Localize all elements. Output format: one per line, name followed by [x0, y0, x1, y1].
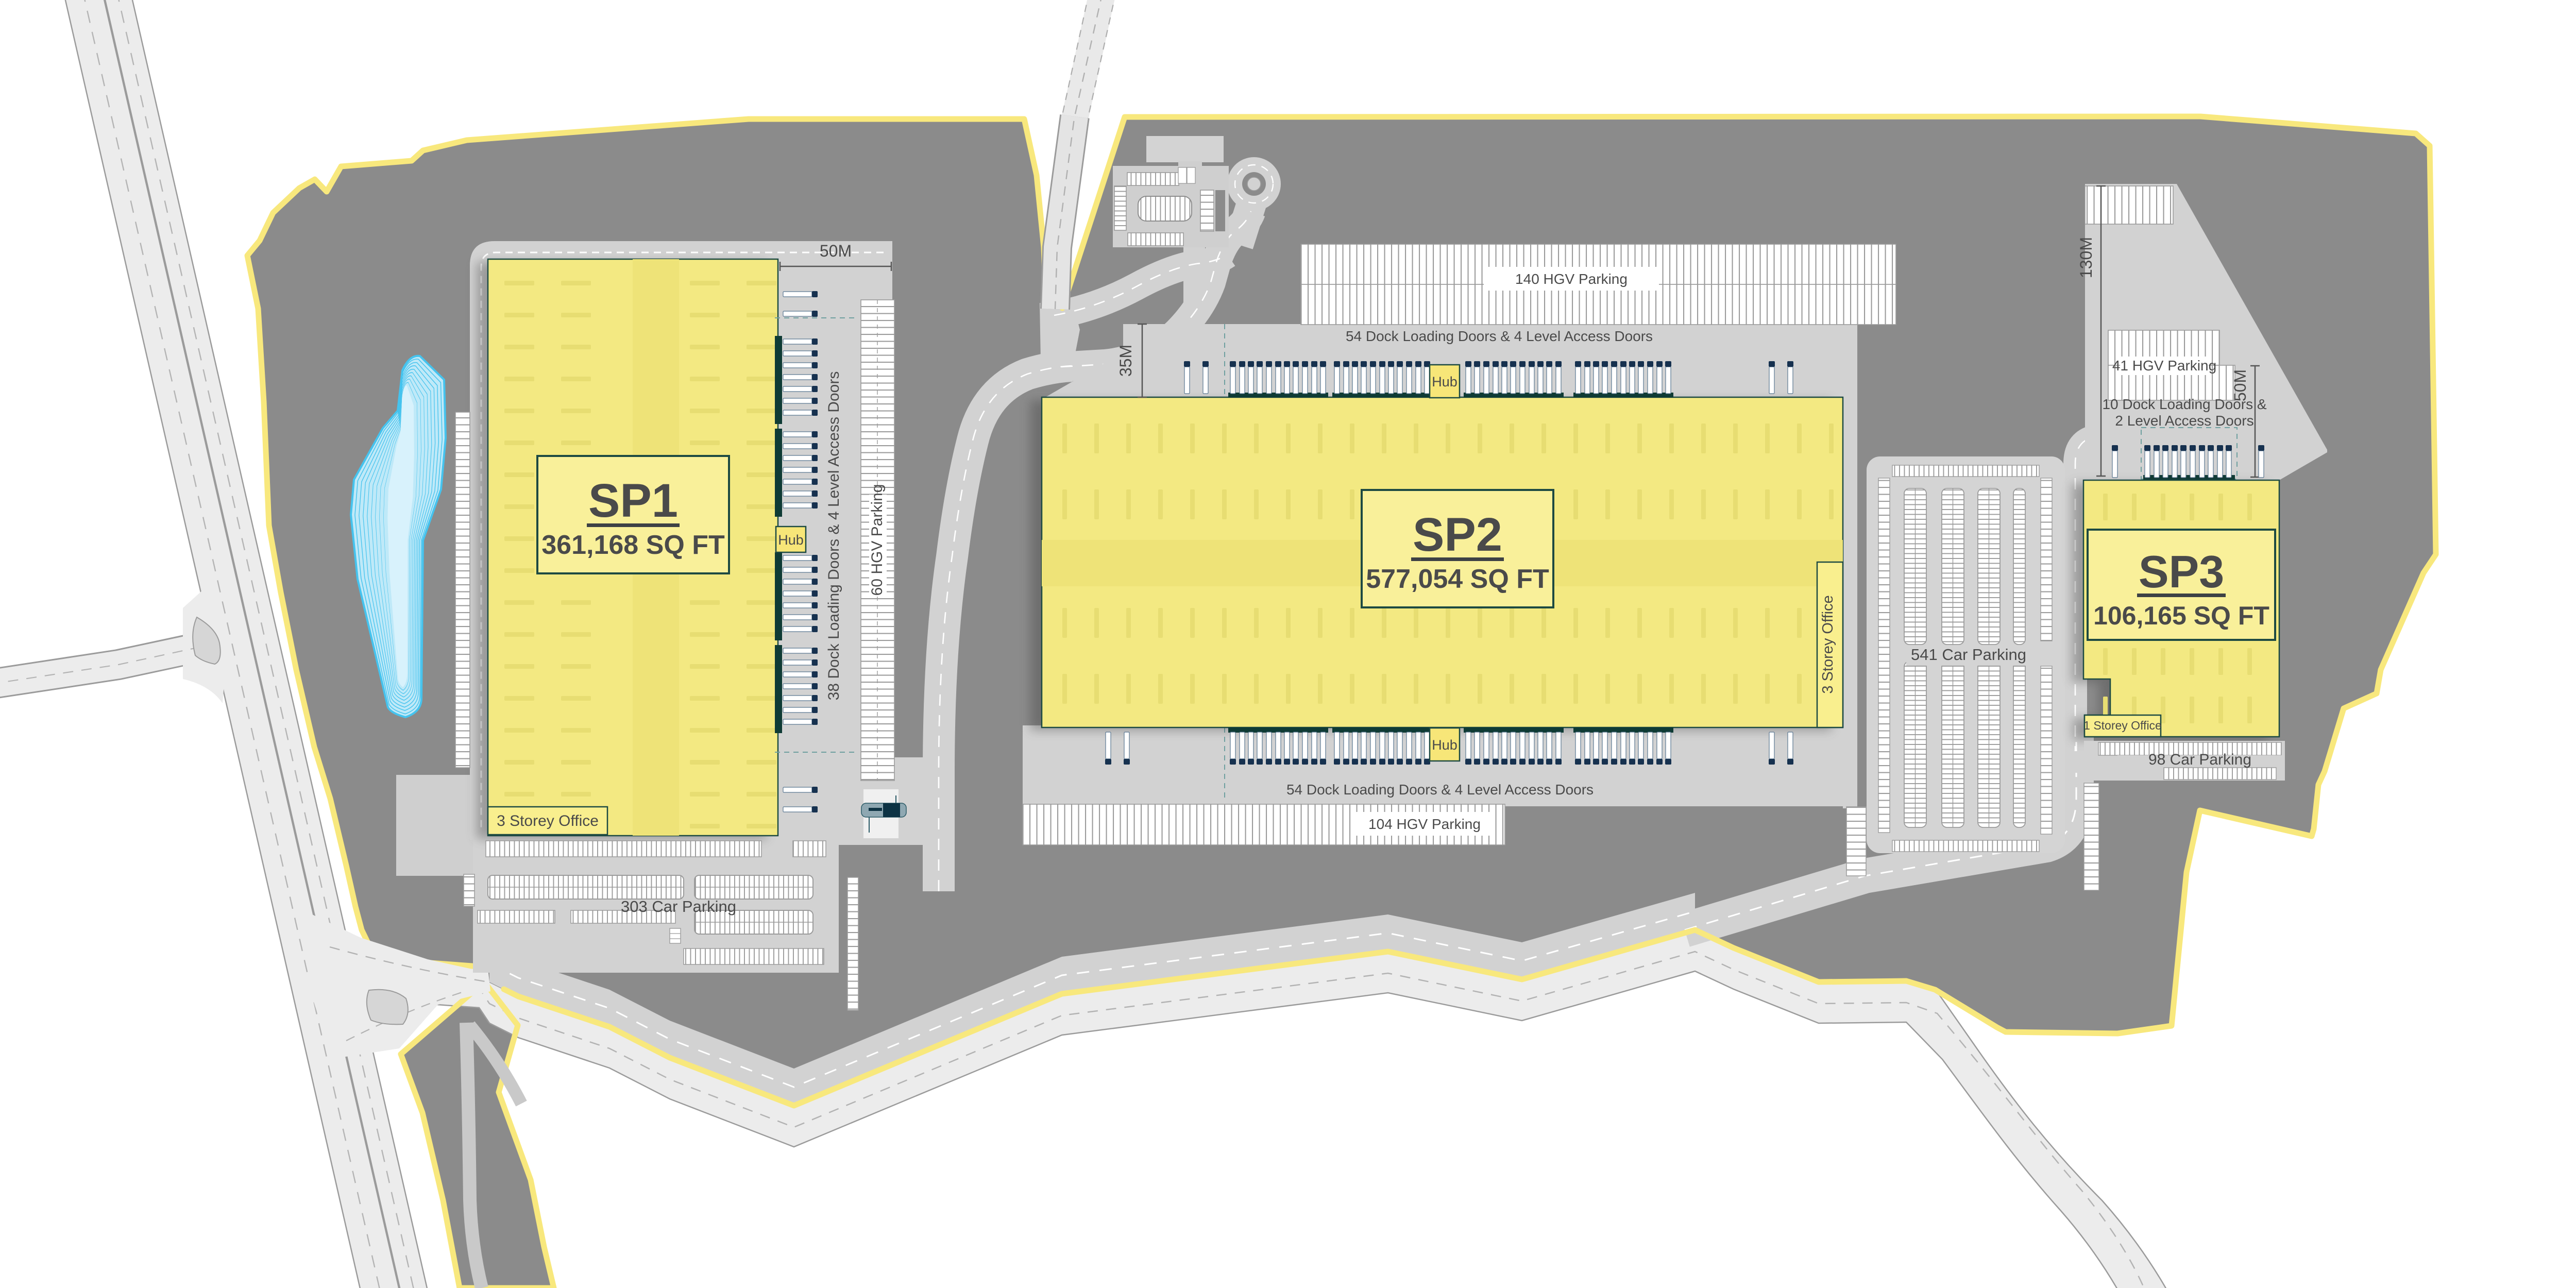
svg-text:50M: 50M [820, 242, 852, 260]
svg-text:98 Car Parking: 98 Car Parking [2148, 751, 2251, 768]
svg-text:361,168 SQ FT: 361,168 SQ FT [541, 530, 725, 560]
svg-text:130M: 130M [2077, 237, 2095, 278]
svg-text:104 HGV Parking: 104 HGV Parking [1368, 816, 1481, 832]
svg-text:54 Dock Loading Doors & 4 Leve: 54 Dock Loading Doors & 4 Level Access D… [1286, 782, 1594, 798]
svg-text:3 Storey Office: 3 Storey Office [1820, 595, 1836, 693]
svg-text:106,165 SQ FT: 106,165 SQ FT [2093, 601, 2269, 630]
svg-text:SP2: SP2 [1413, 509, 1502, 561]
svg-text:SP3: SP3 [2139, 546, 2224, 597]
svg-text:577,054 SQ FT: 577,054 SQ FT [1366, 564, 1549, 594]
svg-text:SP1: SP1 [588, 474, 678, 527]
svg-text:1 Storey Office: 1 Storey Office [2083, 719, 2162, 732]
svg-text:541 Car Parking: 541 Car Parking [1911, 646, 2026, 664]
svg-text:303 Car Parking: 303 Car Parking [621, 897, 736, 916]
svg-text:54 Dock Loading Doors & 4 Leve: 54 Dock Loading Doors & 4 Level Access D… [1346, 328, 1653, 344]
svg-text:38 Dock Loading Doors & 4 Leve: 38 Dock Loading Doors & 4 Level Access D… [825, 371, 842, 701]
svg-text:2 Level Access Doors: 2 Level Access Doors [2115, 413, 2253, 429]
svg-text:35M: 35M [1116, 345, 1135, 377]
svg-text:Hub: Hub [1432, 374, 1458, 389]
svg-text:3 Storey Office: 3 Storey Office [497, 812, 599, 829]
svg-text:Hub: Hub [1432, 737, 1458, 753]
svg-text:60 HGV Parking: 60 HGV Parking [869, 484, 886, 596]
svg-text:50M: 50M [2231, 369, 2249, 401]
svg-text:41 HGV Parking: 41 HGV Parking [2112, 358, 2216, 374]
svg-text:Hub: Hub [778, 532, 804, 548]
svg-text:140 HGV Parking: 140 HGV Parking [1515, 271, 1628, 287]
